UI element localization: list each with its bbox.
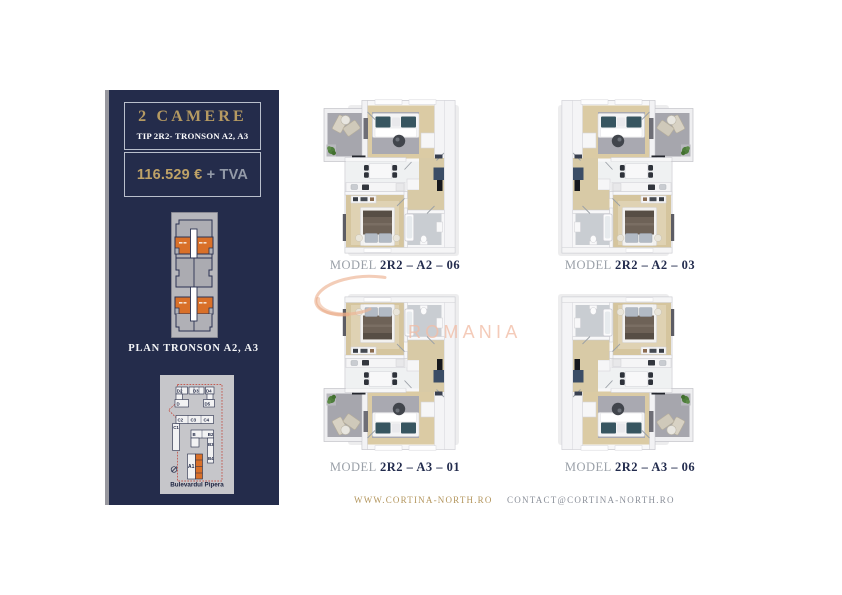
svg-text:B4: B4 xyxy=(208,456,214,461)
svg-text:B: B xyxy=(193,432,196,437)
svg-text:C1: C1 xyxy=(173,425,179,430)
svg-text:B3: B3 xyxy=(208,442,214,447)
svg-text:B2: B2 xyxy=(208,432,214,437)
svg-text:D5: D5 xyxy=(205,402,211,407)
svg-text:D2: D2 xyxy=(177,389,183,394)
svg-text:D3: D3 xyxy=(193,389,199,394)
svg-text:Bulevardul Pipera: Bulevardul Pipera xyxy=(170,482,224,489)
svg-text:A1: A1 xyxy=(188,464,195,470)
svg-text:C2: C2 xyxy=(178,418,184,423)
svg-text:C3: C3 xyxy=(191,418,197,423)
svg-text:D4: D4 xyxy=(206,389,212,394)
svg-text:C4: C4 xyxy=(204,418,210,423)
svg-text:D: D xyxy=(177,402,180,407)
